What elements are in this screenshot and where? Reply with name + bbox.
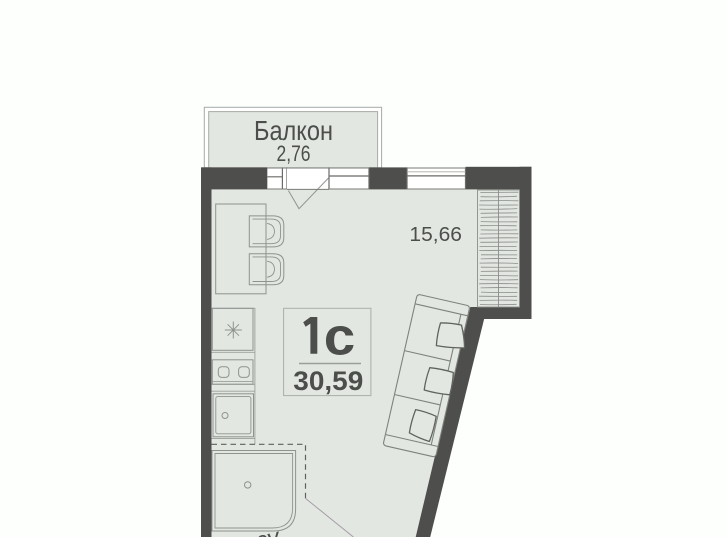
svg-text:с: с <box>324 308 356 367</box>
svg-text:2,76: 2,76 <box>277 141 311 166</box>
svg-text:15,66: 15,66 <box>409 224 462 246</box>
svg-text:30,59: 30,59 <box>293 366 363 396</box>
